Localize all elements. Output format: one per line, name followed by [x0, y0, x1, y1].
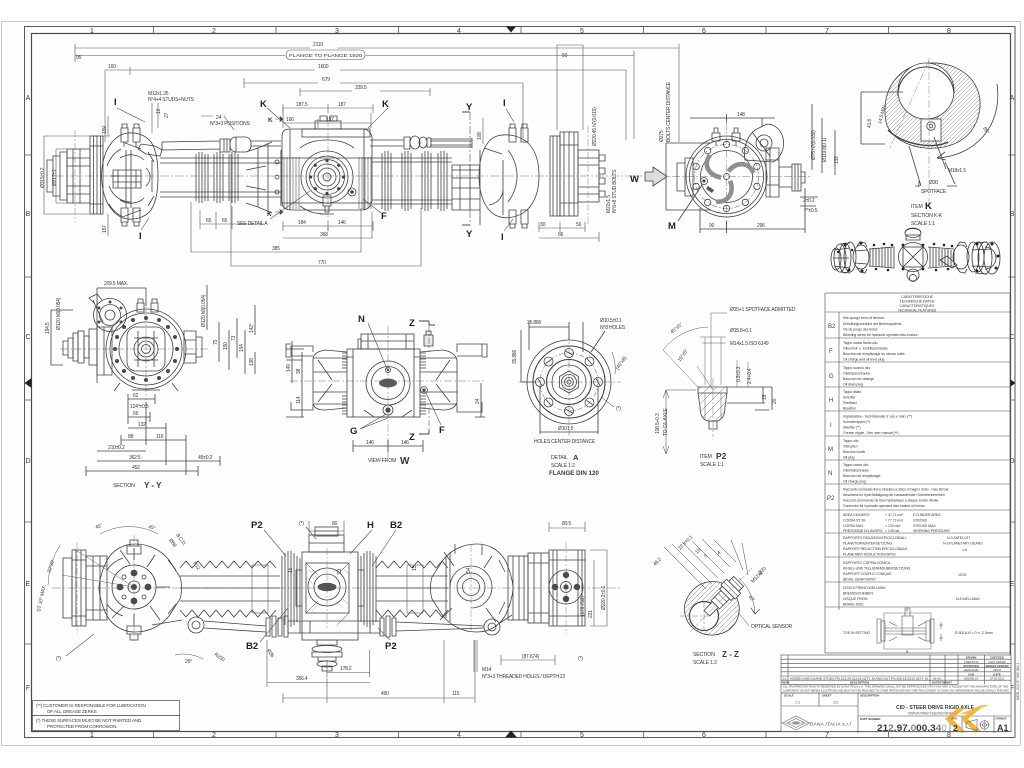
svg-text:160: 160	[108, 64, 116, 70]
svg-text:154: 154	[239, 344, 245, 352]
svg-text:1: 1	[90, 732, 94, 739]
svg-text:80.5: 80.5	[562, 521, 571, 527]
svg-text:41.6: 41.6	[867, 119, 873, 128]
svg-text:N°4+4 STUDS+NUTS: N°4+4 STUDS+NUTS	[148, 97, 195, 103]
svg-text:SCALE 1:2: SCALE 1:2	[551, 463, 575, 469]
svg-text:Ø275: Ø275	[659, 130, 665, 142]
svg-text:4: 4	[457, 28, 461, 35]
svg-text:VIEW FROM: VIEW FROM	[368, 458, 396, 464]
svg-text:E: E	[1010, 581, 1015, 588]
svg-text:B2: B2	[246, 641, 258, 652]
svg-text:N-3 PLANETARY GEARS: N-3 PLANETARY GEARS	[943, 542, 983, 546]
svg-text:7°±0.5: 7°±0.5	[804, 208, 818, 214]
svg-text:M14x1.5 ISO 6149: M14x1.5 ISO 6149	[730, 341, 769, 347]
svg-text:Ø10.5±0.1: Ø10.5±0.1	[600, 318, 622, 324]
svg-text:7: 7	[825, 28, 829, 35]
svg-text:P2: P2	[251, 520, 263, 531]
svg-text:Olkontroll -u. Einfullsschraub: Olkontroll -u. Einfullsschraube	[843, 347, 888, 351]
svg-text:362.5: 362.5	[129, 455, 141, 461]
svg-text:24: 24	[475, 398, 481, 404]
svg-text:356.4: 356.4	[296, 676, 308, 682]
svg-text:(179.759): (179.759)	[580, 596, 586, 616]
svg-text:187: 187	[338, 102, 346, 108]
svg-text:157: 157	[102, 225, 108, 233]
svg-text:DISQUE FREIN: DISQUE FREIN	[843, 597, 868, 601]
svg-text:DETAIL: DETAIL	[551, 455, 568, 461]
svg-text:142°: 142°	[249, 323, 255, 333]
svg-text:PROTECTED FROM CORROSION.: PROTECTED FROM CORROSION.	[47, 724, 117, 729]
svg-text:REV.: REV.	[952, 717, 958, 721]
svg-text:56: 56	[576, 222, 582, 228]
svg-text:FORMAT: FORMAT	[996, 717, 1007, 721]
svg-text:65: 65	[222, 218, 228, 224]
svg-text:1600: 1600	[318, 64, 329, 70]
svg-text:COMPONENT OR UNIT HEREIN ILLUS: COMPONENT OR UNIT HEREIN ILLUSTRATED AND…	[783, 688, 1009, 692]
svg-text:Tappo olio: Tappo olio	[843, 439, 858, 443]
svg-text:3: 3	[335, 28, 339, 35]
svg-text:(**) CUSTOMER IS RESPONSIBLE F: (**) CUSTOMER IS RESPONSIBLE FOR LUBRICA…	[36, 703, 146, 708]
svg-text:PART NUMBER: PART NUMBER	[860, 717, 880, 721]
svg-text:STROKE MAX.: STROKE MAX.	[913, 524, 937, 528]
svg-text:A: A	[26, 95, 31, 102]
svg-text:Ø217±1: Ø217±1	[52, 169, 58, 186]
svg-text:SHEET: SHEET	[822, 694, 832, 698]
svg-text:STROKE: STROKE	[913, 519, 928, 523]
svg-text:W: W	[630, 174, 639, 185]
svg-text:000/006.18: 000/006.18	[964, 677, 978, 681]
svg-text:159: 159	[102, 126, 108, 134]
svg-text:SECTION K-K: SECTION K-K	[911, 213, 943, 219]
svg-text:I: I	[139, 231, 142, 242]
svg-text:Connector for hydraulic operat: Connector for hydraulic operated disc br…	[843, 504, 926, 508]
svg-text:Ø75 h7(0.030): Ø75 h7(0.030)	[811, 130, 817, 160]
svg-text:38: 38	[296, 368, 302, 374]
svg-text:M18x1.5: M18x1.5	[948, 168, 966, 174]
svg-text:(*) THESE SURFACES MUST BE NOT: (*) THESE SURFACES MUST BE NOT PAINTED A…	[36, 718, 142, 723]
svg-text:1:1: 1:1	[795, 701, 800, 705]
svg-text:75: 75	[213, 339, 219, 345]
svg-text:= 120 mm: = 120 mm	[885, 524, 900, 528]
svg-text:Ø30: Ø30	[929, 180, 938, 186]
svg-text:Ø15.8+0.1: Ø15.8+0.1	[730, 328, 752, 334]
svg-text:M: M	[828, 447, 833, 453]
svg-text:OF ALL GREASE ZERKS.: OF ALL GREASE ZERKS.	[47, 709, 98, 714]
svg-text:N°3+3 POSITIONS: N°3+3 POSITIONS	[210, 121, 251, 127]
svg-text:Z: Z	[409, 318, 415, 329]
svg-text:210±0.2: 210±0.2	[108, 445, 125, 451]
svg-text:368: 368	[320, 232, 328, 238]
svg-text:679: 679	[322, 77, 330, 83]
svg-text:Olablassschraube: Olablassschraube	[843, 372, 870, 376]
svg-text:M: M	[668, 221, 676, 232]
svg-text:88: 88	[128, 434, 134, 440]
svg-text:FLANGE TO FLANGE 1920: FLANGE TO FLANGE 1920	[289, 53, 363, 58]
svg-text:Kits spurgo freno di servizio: Kits spurgo freno di servizio	[843, 316, 884, 320]
svg-text:Ø315±0.2: Ø315±0.2	[40, 167, 46, 188]
svg-text:Bouchon de vidange: Bouchon de vidange	[843, 377, 874, 381]
svg-text:116: 116	[156, 434, 164, 440]
svg-text:150: 150	[223, 342, 229, 350]
svg-text:I: I	[503, 98, 506, 109]
svg-text:166: 166	[286, 117, 294, 123]
svg-text:114: 114	[296, 396, 302, 404]
svg-text:Tappo carico olio: Tappo carico olio	[843, 463, 868, 467]
svg-text:Raccord commande de frein hydr: Raccord commande de frein hydraulique a …	[843, 499, 938, 503]
svg-text:30: 30	[540, 222, 546, 228]
svg-text:132: 132	[834, 156, 840, 164]
svg-text:5: 5	[580, 732, 584, 739]
svg-text:SECTION: SECTION	[113, 483, 135, 489]
svg-text:Reniflard: Reniflard	[843, 401, 857, 405]
svg-text:Breather: Breather	[843, 407, 857, 411]
svg-text:DESCRIPTION: DESCRIPTION	[850, 681, 870, 685]
svg-text:Entluftungschraube der Bremssy: Entluftungschraube der Bremssystems	[843, 322, 902, 326]
svg-text:221: 221	[588, 610, 594, 618]
svg-text:BEVEL GEAR RATIO: BEVEL GEAR RATIO	[843, 578, 876, 582]
svg-text:H: H	[829, 398, 833, 404]
svg-text:115: 115	[452, 691, 460, 697]
svg-text:Y - Y: Y - Y	[144, 481, 162, 490]
svg-text:(*): (*)	[299, 521, 304, 527]
svg-text:AREA CILINDRO: AREA CILINDRO	[843, 513, 870, 517]
svg-text:N°8+8 STUD BOLTS: N°8+8 STUD BOLTS	[612, 169, 618, 213]
svg-text:Grease nipple - See user manua: Grease nipple - See user manual (**)	[843, 431, 898, 435]
svg-text:Schmiernippel (**): Schmiernippel (**)	[843, 420, 870, 424]
svg-text:209.5 MAX.: 209.5 MAX.	[104, 281, 128, 287]
svg-text:(*): (*)	[578, 656, 583, 662]
svg-text:Oleinfullschraube: Oleinfullschraube	[843, 469, 869, 473]
svg-text:P2: P2	[827, 496, 835, 502]
svg-text:G: G	[829, 374, 834, 380]
svg-text:P2: P2	[385, 641, 397, 652]
svg-text:15:32: 15:32	[958, 573, 967, 577]
svg-text:212.97.000.340: 212.97.000.340	[877, 723, 947, 734]
svg-text:C: C	[25, 334, 30, 341]
svg-text:54: 54	[466, 567, 472, 573]
svg-text:Ingrassatore - Vedi Manuale d': Ingrassatore - Vedi Manuale d' uso e man…	[843, 415, 912, 419]
svg-text:B: B	[26, 211, 31, 218]
svg-text:SEE DETAIL A: SEE DETAIL A	[237, 221, 268, 227]
svg-text:2: 2	[212, 732, 216, 739]
svg-text:(*): (*)	[56, 656, 61, 662]
svg-text:K: K	[260, 99, 267, 110]
svg-text:N: N	[828, 471, 832, 477]
svg-text:770: 770	[318, 260, 326, 266]
svg-text:6: 6	[702, 28, 706, 35]
svg-text:194.5: 194.5	[45, 322, 51, 334]
svg-text:339.5: 339.5	[355, 85, 367, 91]
svg-text:124°±0.5: 124°±0.5	[130, 404, 149, 410]
svg-text:108: 108	[477, 132, 483, 140]
svg-text:148: 148	[737, 112, 745, 118]
svg-text:F: F	[26, 685, 30, 692]
svg-text:1: 1	[90, 28, 94, 35]
svg-text:ITEM: ITEM	[911, 204, 923, 210]
svg-text:Oil plug: Oil plug	[843, 456, 854, 460]
svg-text:ALL PROPRIETARY RIGHTS RESERVE: ALL PROPRIETARY RIGHTS RESERVED BY DANA …	[783, 685, 1008, 689]
svg-text:DATE/FORMAT: DATE/FORMAT	[932, 681, 952, 685]
svg-text:Vis de purge des freins: Vis de purge des freins	[843, 328, 878, 332]
svg-text:Oil charge plug: Oil charge plug	[843, 480, 866, 484]
svg-text:RAPPORT COUPLE CONIQUE: RAPPORT COUPLE CONIQUE	[843, 572, 892, 576]
svg-text:(87.674): (87.674)	[522, 654, 540, 660]
svg-text:Ø120 h8(0.054): Ø120 h8(0.054)	[56, 297, 62, 330]
svg-text:RAPPORT REDUCTION EPICICLOIDAL: RAPPORT REDUCTION EPICICLOIDALE	[843, 547, 908, 551]
svg-text:SCALE 1:2: SCALE 1:2	[693, 660, 717, 666]
svg-text:Bouchon huille: Bouchon huille	[843, 450, 865, 454]
svg-text:(*): (*)	[616, 406, 621, 412]
svg-text:149: 149	[286, 364, 292, 372]
svg-text:BOLTS CENTER DISTANCE: BOLTS CENTER DISTANCE	[666, 81, 672, 142]
svg-text:R-500 A-B = 0 +/- 2.5mm: R-500 A-B = 0 +/- 2.5mm	[955, 631, 993, 635]
svg-text:5: 5	[580, 28, 584, 35]
svg-text:108.5+0.3: 108.5+0.3	[655, 413, 661, 434]
svg-text:MOD. 212.97.000.340-1: MOD. 212.97.000.340-1	[1016, 662, 1020, 700]
svg-text:SCALE 1:1: SCALE 1:1	[911, 221, 935, 227]
svg-text:Tappo carico livello olio: Tappo carico livello olio	[843, 341, 878, 345]
svg-text:TECHNISCHE DATEN: TECHNISCHE DATEN	[900, 300, 935, 304]
svg-text:DISCHI FRENO WELLMAN: DISCHI FRENO WELLMAN	[843, 586, 886, 590]
svg-text:138: 138	[249, 358, 255, 366]
svg-text:A: A	[1010, 95, 1015, 102]
svg-text:452: 452	[132, 465, 140, 471]
svg-text:A1: A1	[997, 723, 1009, 733]
svg-text:66: 66	[133, 411, 139, 417]
svg-text:B: B	[1010, 211, 1015, 218]
svg-text:146: 146	[338, 220, 346, 226]
svg-text:35.886: 35.886	[527, 320, 542, 326]
svg-text:490: 490	[381, 691, 389, 697]
svg-text:ITEM: ITEM	[700, 454, 712, 460]
svg-text:Bleeding screw for hydraulic o: Bleeding screw for hydraulic operated di…	[843, 333, 918, 337]
svg-text:CORSA MAX: CORSA MAX	[843, 524, 864, 528]
svg-text:SCALE 1:1: SCALE 1:1	[700, 462, 724, 468]
svg-text:A: A	[573, 453, 579, 462]
svg-text:187.5: 187.5	[296, 102, 308, 108]
svg-text:PRESSIONE DI LAVORO: PRESSIONE DI LAVORO	[843, 529, 883, 533]
svg-text:Anschluss fur hydr.Betatigung: Anschluss fur hydr.Betatigung der nassla…	[843, 493, 945, 497]
svg-text:2: 2	[212, 28, 216, 35]
svg-text:CARACTERISTIQUES: CARACTERISTIQUES	[900, 304, 936, 308]
svg-text:REV#: REV#	[782, 681, 790, 685]
svg-text:P2: P2	[716, 451, 727, 461]
svg-text:6: 6	[702, 732, 706, 739]
svg-text:K: K	[268, 117, 273, 124]
svg-text:N-6 WELLMAN: N-6 WELLMAN	[956, 597, 980, 601]
svg-text:50: 50	[562, 53, 568, 59]
svg-text:N: N	[358, 314, 365, 325]
svg-text:2110: 2110	[313, 42, 323, 48]
svg-text:Tappo sfiato: Tappo sfiato	[843, 390, 861, 394]
svg-text:CORSA ST 30-: CORSA ST 30-	[843, 519, 867, 523]
svg-text:FLANGE DIN 120: FLANGE DIN 120	[549, 470, 599, 477]
svg-text:80: 80	[332, 521, 338, 527]
svg-text:N°8 HOLES: N°8 HOLES	[600, 325, 626, 331]
svg-text:K: K	[925, 201, 932, 212]
svg-text:Olstopfen: Olstopfen	[843, 445, 858, 449]
svg-text:Ø220.2±0.1: Ø220.2±0.1	[601, 585, 607, 610]
svg-text:Ø220.45 h7(0.015): Ø220.45 h7(0.015)	[592, 107, 598, 146]
svg-text:PLANETERNUNTERSETZUNG: PLANETERNUNTERSETZUNG	[843, 542, 892, 546]
svg-text:M14: M14	[482, 667, 492, 673]
svg-text:15: 15	[412, 565, 418, 571]
svg-text:184: 184	[298, 220, 306, 226]
svg-text:62: 62	[133, 393, 139, 399]
svg-text:TECHNICAL FEATURES: TECHNICAL FEATURES	[898, 309, 937, 313]
svg-text:KEGEL-UND TELLERRADUBERSETZUNG: KEGEL-UND TELLERRADUBERSETZUNG	[843, 567, 911, 571]
svg-text:WORKING PRESSURE: WORKING PRESSURE	[913, 529, 950, 533]
svg-text:Entlufter: Entlufter	[843, 396, 856, 400]
svg-text:385: 385	[272, 246, 280, 252]
svg-text:157: 157	[326, 117, 334, 123]
svg-text:DESCRIPTION: DESCRIPTION	[860, 694, 880, 698]
svg-text:SECTION: SECTION	[693, 652, 715, 658]
svg-text:Ø119.8(0.1): Ø119.8(0.1)	[822, 137, 828, 162]
svg-text:N-3 SATELLITI: N-3 SATELLITI	[947, 536, 970, 540]
svg-text:Tappo scarico olio: Tappo scarico olio	[843, 366, 870, 370]
svg-text:Y: Y	[466, 229, 473, 240]
svg-text:15: 15	[288, 567, 294, 573]
svg-text:CYLINDER AREA: CYLINDER AREA	[913, 513, 941, 517]
svg-text:65: 65	[206, 218, 212, 224]
svg-text:OPTICAL SENSOR: OPTICAL SENSOR	[751, 624, 793, 630]
svg-text:4: 4	[457, 732, 461, 739]
svg-text:296: 296	[757, 223, 765, 229]
svg-text:Raccordo comando freno idrauli: Raccordo comando freno idraulico a disco…	[843, 488, 949, 492]
svg-text:Y: Y	[466, 102, 473, 113]
svg-text:2: 2	[953, 723, 958, 733]
svg-text:Z - Z: Z - Z	[722, 650, 739, 659]
svg-text:10: 10	[156, 108, 162, 114]
svg-text:90: 90	[709, 223, 715, 229]
svg-text:26°: 26°	[185, 659, 192, 665]
svg-text:27: 27	[164, 112, 170, 118]
svg-text:G: G	[350, 426, 357, 437]
svg-text:Stauffer (**): Stauffer (**)	[843, 426, 860, 430]
svg-text:07-02-2022: 07-02-2022	[990, 677, 1005, 681]
svg-text:146: 146	[401, 440, 409, 446]
svg-text:Bouchon de remplissage du nive: Bouchon de remplissage du niveau huille	[843, 352, 905, 356]
svg-text:HOLES CENTER DISTANCE: HOLES CENTER DISTANCE	[534, 439, 596, 445]
svg-text:Bouchon de remplissage: Bouchon de remplissage	[843, 474, 880, 478]
svg-text:= 145 bar: = 145 bar	[885, 529, 900, 533]
svg-text:= 77.73 mm: = 77.73 mm	[885, 519, 903, 523]
svg-text:DANA ITALIA s.r.l: DANA ITALIA s.r.l	[810, 722, 852, 727]
svg-text:15: 15	[762, 394, 768, 400]
svg-text:W: W	[400, 456, 410, 467]
svg-text:8: 8	[947, 28, 951, 35]
svg-text:F: F	[829, 349, 833, 355]
svg-text:20: 20	[772, 398, 778, 404]
svg-text:95: 95	[76, 55, 82, 61]
svg-text:146: 146	[366, 440, 374, 446]
svg-text:132: 132	[138, 422, 146, 428]
svg-text:N°3+3 THREADED HOLES / DEPTH 2: N°3+3 THREADED HOLES / DEPTH 22	[482, 674, 566, 680]
svg-text:8: 8	[947, 732, 951, 739]
svg-text:35.886: 35.886	[512, 349, 518, 364]
svg-text:H: H	[367, 520, 374, 531]
svg-text:TOE IN SETTING: TOE IN SETTING	[843, 631, 870, 635]
svg-text:1/1: 1/1	[833, 701, 838, 705]
svg-text:BREMSSCHEIBEN: BREMSSCHEIBEN	[843, 592, 873, 596]
svg-text:D: D	[25, 458, 30, 465]
svg-text:= 47.71 cm²: = 47.71 cm²	[885, 513, 904, 517]
svg-text:Oil charge and oil level plug: Oil charge and oil level plug	[843, 358, 884, 362]
svg-text:Ø101.5: Ø101.5	[558, 426, 574, 432]
svg-text:RAPPORTO RIDUZIONI EPICICLOIDA: RAPPORTO RIDUZIONI EPICICLOIDALI	[843, 536, 906, 540]
svg-text:Ø120 h8(0.054): Ø120 h8(0.054)	[201, 294, 207, 327]
svg-text:RAPPORTO COPPIA CONICA: RAPPORTO COPPIA CONICA	[843, 561, 891, 565]
svg-text:K: K	[267, 211, 272, 218]
svg-text:I: I	[114, 97, 117, 108]
svg-text:73: 73	[231, 335, 237, 341]
svg-text:Z: Z	[409, 432, 415, 443]
svg-text:B2: B2	[828, 324, 836, 330]
svg-text:CARATTERISTICHE: CARATTERISTICHE	[901, 295, 933, 299]
svg-text:SCALE: SCALE	[784, 694, 794, 698]
svg-text:45±0.2: 45±0.2	[198, 455, 212, 461]
svg-text:23: 23	[337, 568, 343, 574]
svg-text:SPOTFACE: SPOTFACE	[921, 189, 947, 195]
svg-text:7: 7	[825, 732, 829, 739]
svg-text:B2: B2	[390, 520, 402, 531]
svg-text:I: I	[501, 232, 504, 243]
svg-text:1:6: 1:6	[962, 548, 967, 552]
svg-text:3: 3	[335, 732, 339, 739]
svg-text:F: F	[381, 211, 387, 222]
svg-text:E: E	[26, 581, 31, 588]
svg-text:Ø25+1 SPOTFACE ADMITTED: Ø25+1 SPOTFACE ADMITTED	[730, 307, 796, 313]
svg-text:86: 86	[558, 232, 564, 238]
svg-text:Oil drain plug: Oil drain plug	[843, 383, 863, 387]
svg-text:PLANETARY REDUCTION RATIO: PLANETARY REDUCTION RATIO	[843, 553, 896, 557]
svg-text:F: F	[439, 425, 445, 436]
svg-text:178.2: 178.2	[340, 666, 352, 672]
svg-text:BRAKE DISC: BRAKE DISC	[843, 603, 864, 607]
